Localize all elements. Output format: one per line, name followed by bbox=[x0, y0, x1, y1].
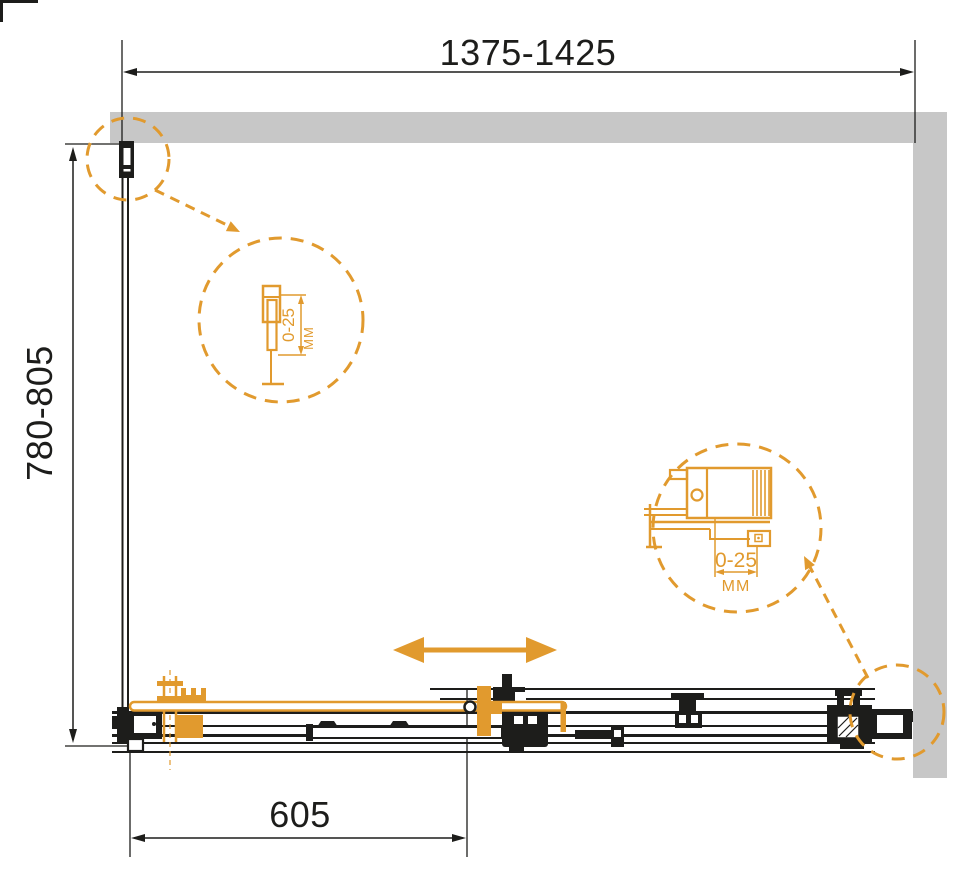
walls bbox=[110, 112, 947, 778]
detail-hatch bbox=[753, 470, 769, 516]
detail-left-unit-label: ММ bbox=[301, 326, 316, 350]
left-wall-profile-top bbox=[119, 141, 134, 178]
wall-top bbox=[110, 112, 947, 143]
fixed-panel-mechanism bbox=[130, 670, 566, 770]
leader-left bbox=[155, 190, 229, 226]
dimension-width-label: 1375-1425 bbox=[440, 32, 617, 73]
dimension-depth-label: 780-805 bbox=[19, 345, 60, 481]
roller-bracket bbox=[671, 693, 704, 728]
dimension-bottom bbox=[131, 834, 466, 842]
frame-corner-mark bbox=[0, 0, 38, 22]
detail-right-range-label: 0-25 bbox=[715, 549, 757, 572]
arrow-right-icon bbox=[452, 834, 466, 842]
slide-direction-arrow-icon bbox=[393, 637, 557, 663]
detail-left-range-label: 0-25 bbox=[279, 308, 298, 342]
leader-left-arrowhead-icon bbox=[226, 221, 240, 232]
door-handle-knob bbox=[465, 702, 476, 713]
detail-right-unit-label: ММ bbox=[722, 578, 751, 595]
dimension-door-label: 605 bbox=[269, 794, 331, 835]
arrow-down-icon bbox=[69, 729, 77, 743]
left-wall-profile-bottom bbox=[112, 707, 162, 751]
enclosure-plan bbox=[112, 141, 913, 753]
dimension-left bbox=[69, 147, 77, 743]
leader-right bbox=[810, 567, 868, 678]
arrow-right-icon bbox=[900, 68, 914, 76]
detail-callouts bbox=[87, 118, 944, 759]
shower-enclosure-dimension-diagram: 1375-1425 780-805 605 0-25 ММ 0-25 ММ bbox=[0, 0, 970, 880]
wall-right bbox=[913, 112, 947, 778]
left-glass-panel bbox=[122, 177, 130, 713]
arrow-up-icon bbox=[69, 147, 77, 161]
arrow-left-icon bbox=[123, 68, 137, 76]
arrow-left-icon bbox=[131, 834, 145, 842]
bottom-guide-bar bbox=[306, 721, 502, 741]
drawing-canvas: 1375-1425 780-805 605 0-25 ММ 0-25 ММ bbox=[0, 0, 970, 880]
